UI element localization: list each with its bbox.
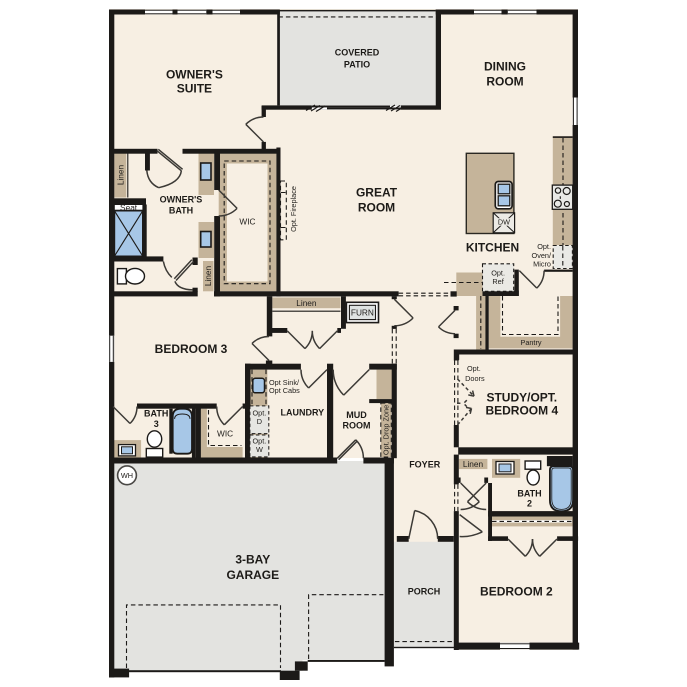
- svg-text:BEDROOM 3: BEDROOM 3: [155, 342, 228, 356]
- svg-text:3: 3: [154, 419, 159, 429]
- svg-text:BEDROOM 2: BEDROOM 2: [480, 584, 553, 598]
- svg-text:WIC: WIC: [239, 217, 255, 227]
- svg-text:D: D: [257, 417, 262, 426]
- svg-text:OWNER'S: OWNER'S: [166, 67, 223, 81]
- svg-text:ROOM: ROOM: [343, 421, 371, 431]
- svg-text:Linen: Linen: [115, 164, 125, 185]
- svg-text:Doors: Doors: [465, 374, 485, 383]
- svg-text:W: W: [256, 445, 263, 454]
- svg-text:LAUNDRY: LAUNDRY: [280, 407, 324, 417]
- svg-text:WIC: WIC: [217, 429, 233, 439]
- svg-text:BATH: BATH: [517, 489, 541, 499]
- svg-text:Pantry: Pantry: [520, 338, 541, 347]
- svg-text:COVERED: COVERED: [335, 48, 380, 58]
- svg-text:STUDY/OPT.: STUDY/OPT.: [486, 391, 557, 405]
- svg-text:2: 2: [527, 499, 532, 509]
- svg-text:GARAGE: GARAGE: [226, 568, 279, 582]
- svg-text:Seat: Seat: [120, 203, 138, 213]
- svg-text:Opt Cabs: Opt Cabs: [269, 386, 300, 395]
- svg-text:ROOM: ROOM: [486, 74, 523, 88]
- svg-text:SUITE: SUITE: [177, 81, 212, 95]
- svg-text:DW: DW: [498, 217, 510, 226]
- svg-text:KITCHEN: KITCHEN: [466, 241, 519, 255]
- svg-text:PATIO: PATIO: [344, 60, 370, 70]
- svg-text:MUD: MUD: [346, 410, 367, 420]
- svg-text:FOYER: FOYER: [409, 460, 441, 470]
- svg-text:Micro: Micro: [533, 259, 551, 268]
- svg-text:DINING: DINING: [484, 59, 526, 73]
- svg-text:Linen: Linen: [203, 265, 213, 286]
- svg-text:FURN: FURN: [351, 308, 374, 318]
- svg-text:3-BAY: 3-BAY: [235, 552, 270, 566]
- svg-text:WH: WH: [121, 471, 133, 480]
- svg-text:Opt. Drop Zone: Opt. Drop Zone: [382, 405, 391, 455]
- svg-text:OWNER'S: OWNER'S: [160, 194, 203, 204]
- svg-text:GREAT: GREAT: [356, 186, 398, 200]
- svg-text:ROOM: ROOM: [358, 201, 395, 215]
- svg-text:BATH: BATH: [169, 205, 193, 215]
- svg-text:Linen: Linen: [296, 298, 317, 308]
- svg-text:PORCH: PORCH: [408, 586, 441, 596]
- svg-text:Ref: Ref: [492, 277, 504, 286]
- svg-text:Linen: Linen: [463, 459, 484, 469]
- svg-text:BATH: BATH: [144, 409, 168, 419]
- svg-text:BEDROOM 4: BEDROOM 4: [485, 404, 558, 418]
- svg-text:Opt.: Opt.: [467, 364, 481, 373]
- svg-text:Opt. Fireplace: Opt. Fireplace: [289, 186, 298, 232]
